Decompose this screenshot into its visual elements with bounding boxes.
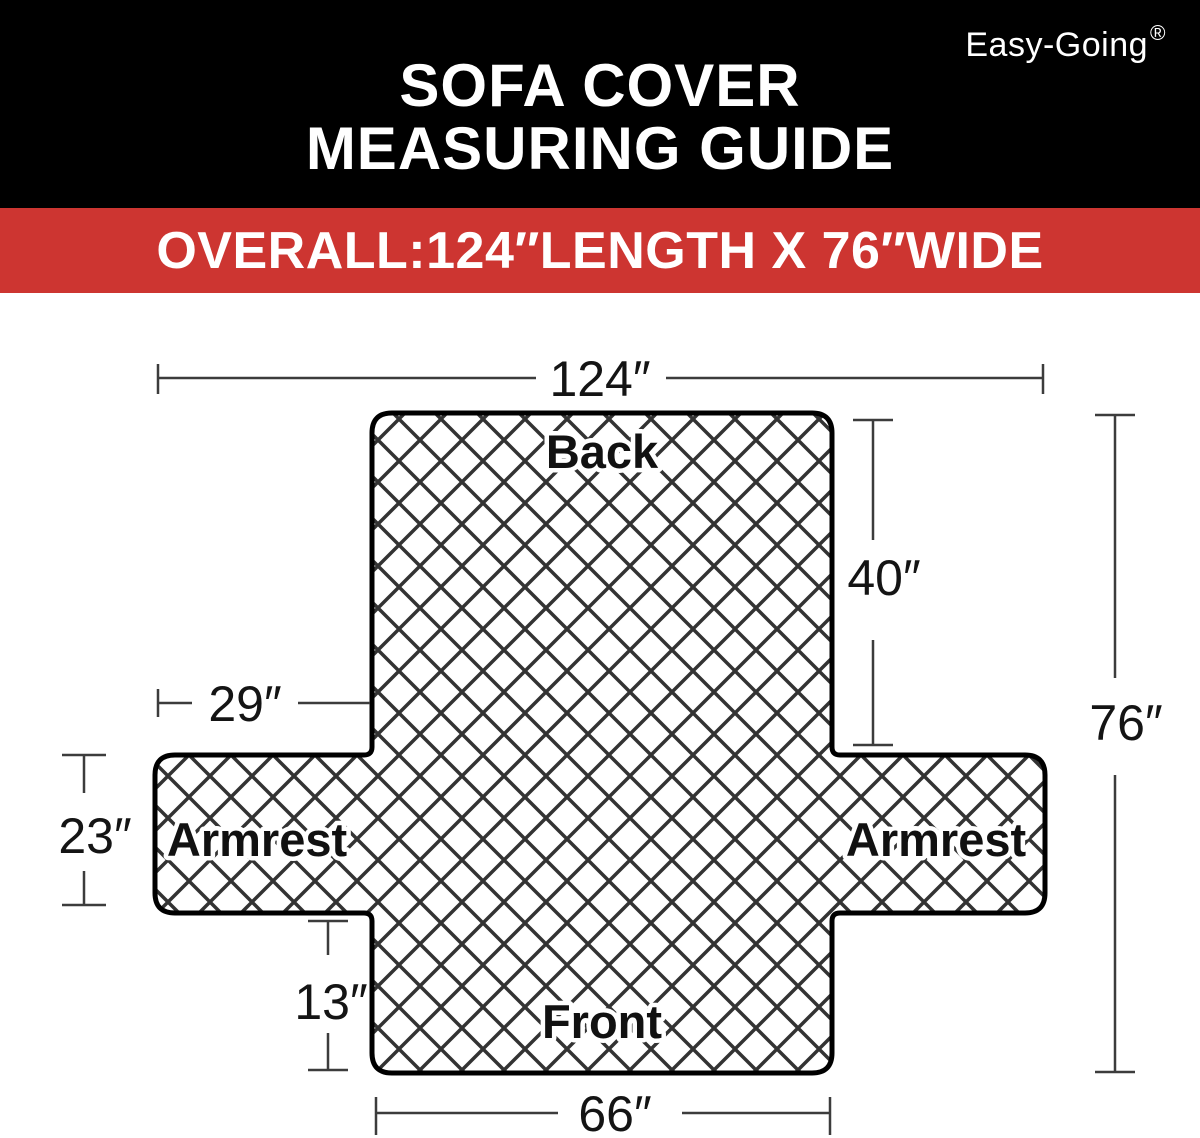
header: Easy-Going® SOFA COVER MEASURING GUIDE (0, 0, 1200, 208)
dim-overall-width-value: 76″ (1089, 695, 1162, 751)
title-line-2: MEASURING GUIDE (0, 117, 1200, 180)
dim-front-height-value: 13″ (294, 974, 367, 1030)
registered-trademark-icon: ® (1150, 22, 1166, 45)
sofa-cover-measuring-guide: Easy-Going® SOFA COVER MEASURING GUIDE O… (0, 0, 1200, 1138)
dim-armrest-width-value: 23″ (58, 808, 131, 864)
dim-armrest-length-value: 29″ (208, 676, 281, 732)
back-zone-label: Back (546, 425, 659, 478)
sofa-cover-shape (155, 413, 1045, 1073)
sofa-cover-diagram: 124″ 40″ 76″ 29″ (0, 293, 1200, 1138)
front-zone-label: Front (542, 995, 662, 1048)
dim-front-width-value: 66″ (578, 1086, 651, 1138)
brand-name: Easy-Going (965, 26, 1148, 64)
armrest-right-zone-label: Armrest (846, 813, 1027, 866)
armrest-left-zone-label: Armrest (167, 813, 348, 866)
dim-back-height-value: 40″ (847, 550, 920, 606)
dim-overall-length-value: 124″ (549, 351, 650, 407)
overall-size-banner: OVERALL:124″LENGTH X 76″WIDE (0, 208, 1200, 293)
overall-size-text: OVERALL:124″LENGTH X 76″WIDE (156, 221, 1043, 281)
brand-logo: Easy-Going® (965, 26, 1166, 65)
